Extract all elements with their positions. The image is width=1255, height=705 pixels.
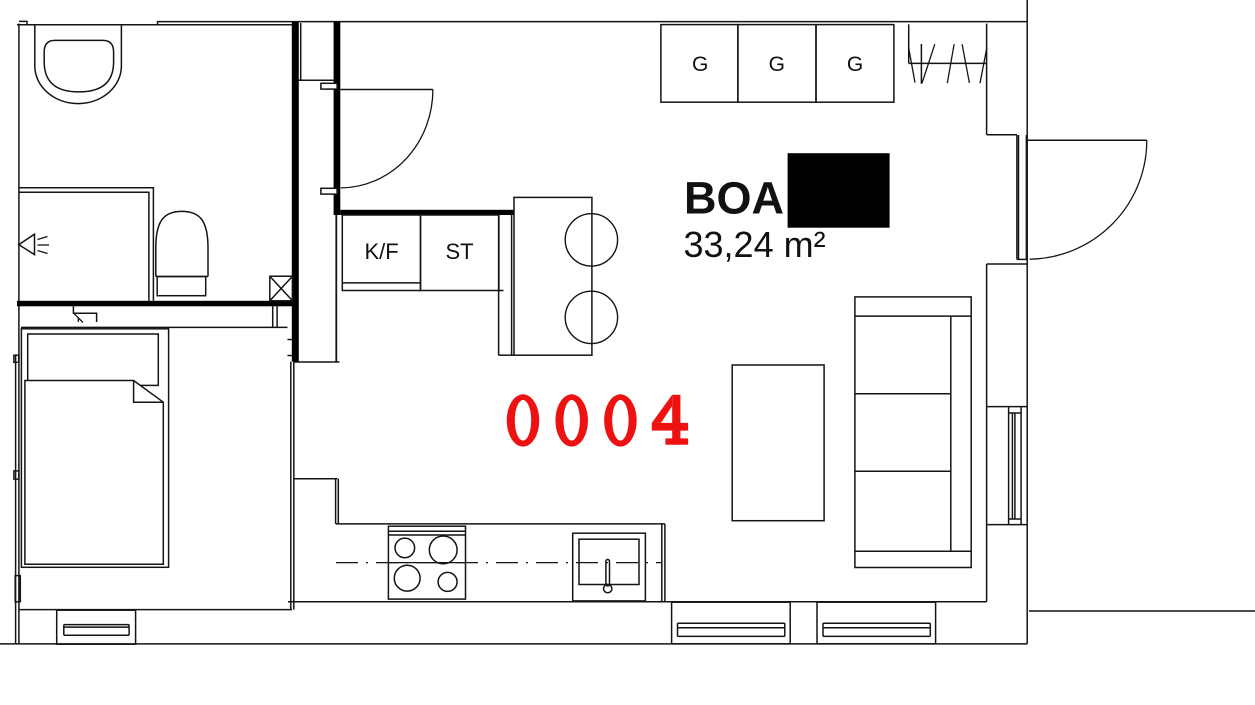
svg-text:G: G <box>769 53 785 76</box>
svg-text:K/F: K/F <box>364 239 398 264</box>
svg-text:BOA: BOA <box>684 173 784 224</box>
svg-text:33,24 m²: 33,24 m² <box>684 224 826 265</box>
svg-text:ST: ST <box>445 239 473 264</box>
svg-text:G: G <box>692 53 708 76</box>
svg-text:G: G <box>847 53 863 76</box>
